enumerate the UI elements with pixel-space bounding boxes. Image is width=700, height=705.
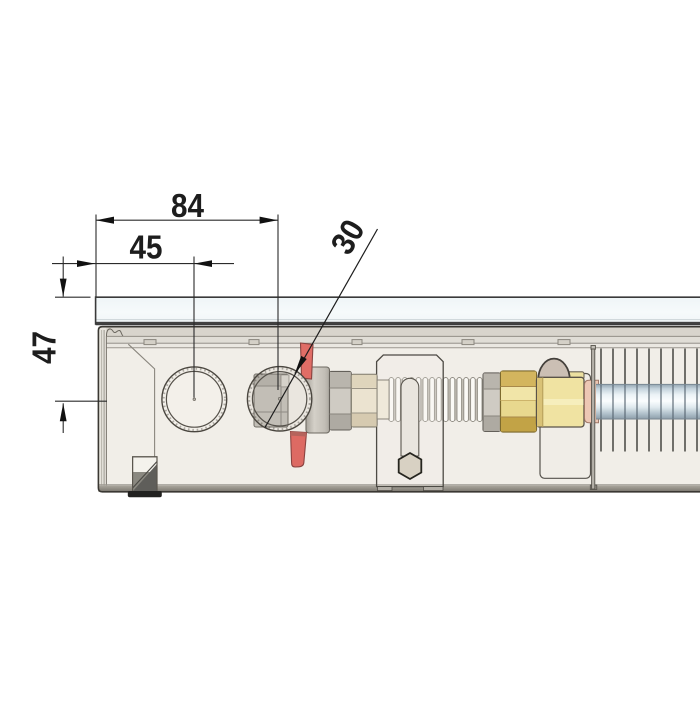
svg-text:45: 45 [130, 229, 163, 266]
svg-text:84: 84 [171, 187, 205, 224]
svg-text:47: 47 [26, 331, 63, 364]
